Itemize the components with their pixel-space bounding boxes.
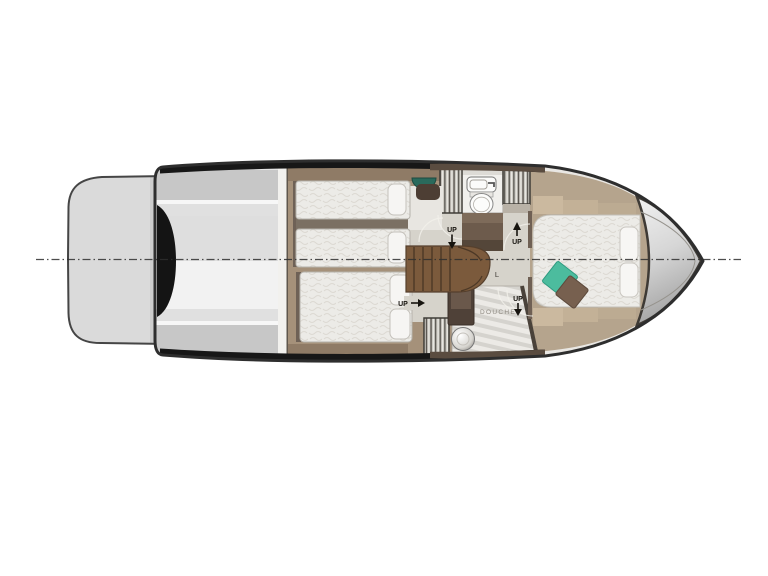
yacht-deck-plan: UP UP UP UP DOUCHE L xyxy=(0,0,768,576)
cockpit-engine-room xyxy=(155,166,288,358)
master-cabin-bed xyxy=(533,215,640,309)
floorplan-canvas: UP UP UP UP DOUCHE L xyxy=(0,0,768,576)
up-label: UP xyxy=(512,239,522,246)
pillow xyxy=(388,184,406,215)
staircase xyxy=(406,246,490,292)
up-label: UP xyxy=(398,301,408,308)
up-label: UP xyxy=(447,227,457,234)
pillow xyxy=(388,232,406,263)
shower-basin xyxy=(452,328,475,351)
head-toilet-room xyxy=(462,167,503,251)
bulkhead xyxy=(278,168,287,356)
pillow xyxy=(620,263,638,297)
pillow xyxy=(620,227,638,261)
up-label: UP xyxy=(513,296,523,303)
shower-room xyxy=(448,286,537,356)
shower-room-label: DOUCHE xyxy=(480,309,516,316)
locker-left-of-head xyxy=(440,168,462,213)
master-wall-lower xyxy=(528,277,532,319)
nightstand xyxy=(416,184,440,200)
locker-mark-label: L xyxy=(495,270,499,279)
locker-right-of-head xyxy=(503,169,530,204)
sink xyxy=(467,177,496,192)
master-wall-upper xyxy=(528,211,532,248)
pillow xyxy=(390,309,410,339)
